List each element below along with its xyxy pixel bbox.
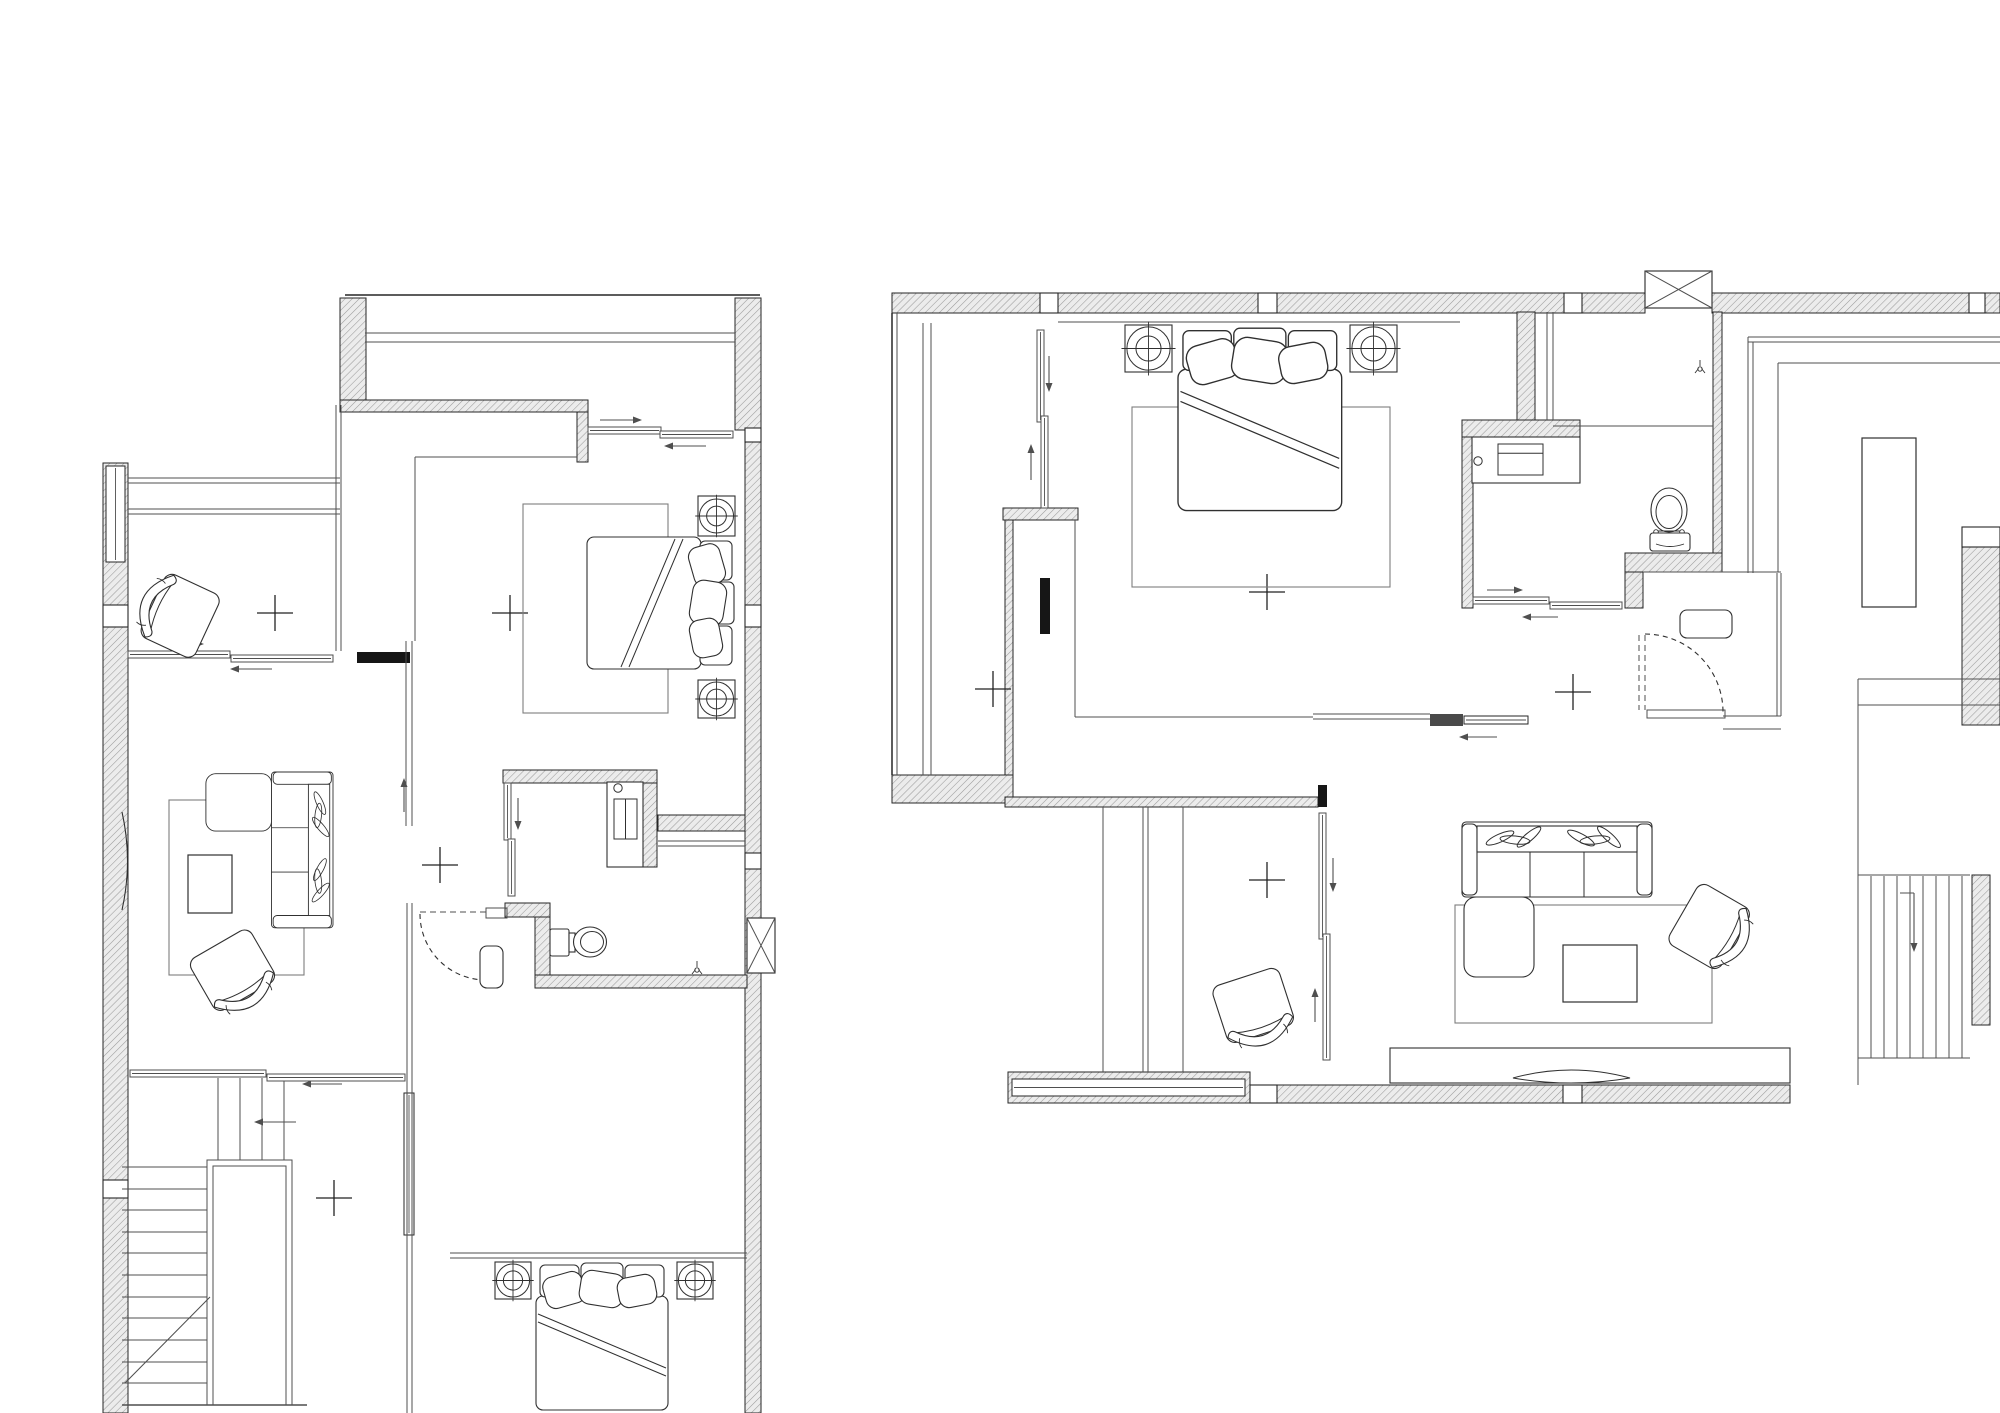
box-symbol bbox=[213, 1166, 286, 1405]
wall-symbol bbox=[577, 412, 588, 462]
col-symbol bbox=[1962, 527, 2000, 547]
col-symbol bbox=[745, 853, 761, 869]
solid-symbol bbox=[1430, 714, 1463, 726]
col-symbol bbox=[1563, 1085, 1582, 1103]
box-symbol bbox=[207, 1160, 292, 1405]
slide-symbol bbox=[1319, 813, 1330, 1060]
arrow-symbol bbox=[600, 417, 642, 424]
col-symbol bbox=[1258, 293, 1277, 313]
arrow-symbol bbox=[230, 666, 272, 673]
wall-symbol bbox=[658, 815, 745, 831]
armchair-living bbox=[1666, 881, 1762, 977]
arrow-symbol bbox=[1522, 614, 1558, 621]
wall-symbol bbox=[1277, 1085, 1790, 1103]
arrow-symbol bbox=[515, 798, 522, 830]
arrow-symbol bbox=[254, 1119, 296, 1126]
island-counter bbox=[1862, 438, 1916, 607]
ns-symbol bbox=[674, 1260, 715, 1301]
wall-symbol bbox=[1962, 547, 2000, 725]
bed-upper-bedroom bbox=[587, 537, 734, 669]
vanity-symbol bbox=[607, 782, 643, 867]
wall-symbol bbox=[1517, 312, 1535, 420]
box-symbol bbox=[486, 908, 507, 918]
ns-symbol bbox=[1346, 321, 1400, 375]
tap-symbol bbox=[692, 961, 702, 974]
wall-symbol bbox=[643, 783, 657, 867]
arrow-symbol bbox=[1028, 444, 1035, 480]
tv-symbol bbox=[1390, 1048, 1790, 1083]
win-symbol bbox=[106, 466, 125, 562]
bed-lower-bedroom bbox=[536, 1263, 668, 1410]
wall-symbol bbox=[1462, 420, 1580, 437]
wall-symbol bbox=[1712, 293, 2000, 313]
win-symbol bbox=[1464, 716, 1528, 724]
solid-symbol bbox=[1040, 578, 1050, 634]
wall-symbol bbox=[503, 770, 657, 783]
mat-symbol bbox=[1680, 610, 1732, 638]
col-symbol bbox=[1250, 1085, 1277, 1103]
ns-symbol bbox=[492, 1260, 533, 1301]
bed-master-bedroom bbox=[1178, 328, 1342, 510]
mat-symbol bbox=[480, 946, 503, 988]
floorplan-drawing bbox=[0, 0, 2000, 1413]
slide-symbol bbox=[504, 783, 515, 896]
ns-symbol bbox=[695, 678, 738, 721]
slide-symbol bbox=[130, 1070, 405, 1081]
slide-symbol bbox=[1473, 597, 1622, 609]
wall-symbol bbox=[535, 917, 550, 975]
solid-symbol bbox=[1318, 785, 1327, 807]
wall-symbol bbox=[340, 298, 366, 406]
wall-symbol bbox=[1625, 572, 1643, 608]
wall-symbol bbox=[1462, 437, 1473, 608]
wall-symbol bbox=[735, 298, 761, 430]
xbox-symbol bbox=[1645, 271, 1712, 308]
vanity-symbol bbox=[1472, 437, 1580, 483]
arrow-symbol bbox=[1459, 734, 1497, 741]
wall-symbol bbox=[1005, 508, 1013, 798]
win-symbol bbox=[1012, 1079, 1245, 1096]
arrow-symbol bbox=[1911, 893, 1918, 952]
wall-symbol bbox=[340, 400, 588, 412]
coffee-table bbox=[1563, 945, 1637, 1002]
arc-symbol bbox=[420, 914, 486, 980]
box-symbol bbox=[1647, 710, 1725, 718]
lounge-chair-upper-room bbox=[128, 567, 222, 660]
cross-symbol bbox=[1249, 862, 1285, 898]
cross-symbol bbox=[422, 847, 458, 883]
col-symbol bbox=[745, 428, 761, 442]
wall-symbol bbox=[1713, 312, 1722, 572]
left-floor-plan bbox=[103, 295, 775, 1413]
ns-symbol bbox=[1121, 321, 1175, 375]
ns-symbol bbox=[695, 495, 738, 538]
lounge-chair-study bbox=[1211, 966, 1300, 1055]
floorplan-canvas bbox=[0, 0, 2000, 1413]
right-floor-plan bbox=[892, 271, 2000, 1103]
wall-symbol bbox=[892, 775, 1013, 803]
arrow-symbol bbox=[1312, 988, 1319, 1022]
cross-symbol bbox=[316, 1180, 352, 1216]
solid-symbol bbox=[357, 652, 410, 663]
toilet-symbol bbox=[550, 927, 607, 957]
toilet-symbol bbox=[1650, 488, 1690, 551]
col-symbol bbox=[745, 605, 761, 627]
arrow-symbol bbox=[1330, 858, 1337, 892]
coffee-table bbox=[188, 855, 232, 913]
col-symbol bbox=[1040, 293, 1058, 313]
wall-symbol bbox=[1972, 875, 1990, 1025]
arrow-symbol bbox=[1046, 356, 1053, 392]
col-symbol bbox=[1564, 293, 1582, 313]
cross-symbol bbox=[1555, 674, 1591, 710]
lounge-chair-living bbox=[187, 927, 283, 1023]
slide-symbol bbox=[128, 651, 333, 662]
wall-symbol bbox=[505, 903, 550, 917]
wall-symbol bbox=[1003, 508, 1078, 520]
cross-symbol bbox=[257, 595, 293, 631]
arrow-symbol bbox=[302, 1081, 342, 1088]
xbox-symbol bbox=[747, 918, 775, 973]
col-symbol bbox=[1969, 293, 1985, 313]
slide-symbol bbox=[1037, 330, 1048, 508]
arc-symbol bbox=[1645, 634, 1723, 712]
wall-symbol bbox=[1625, 553, 1722, 572]
arrow-symbol bbox=[664, 443, 706, 450]
wall-symbol bbox=[1005, 797, 1318, 807]
arrow-symbol bbox=[1487, 587, 1523, 594]
tap-symbol bbox=[1695, 360, 1705, 373]
slide-symbol bbox=[588, 427, 733, 438]
col-symbol bbox=[103, 605, 128, 627]
cross-symbol bbox=[1249, 574, 1285, 610]
wall-symbol bbox=[535, 975, 747, 988]
